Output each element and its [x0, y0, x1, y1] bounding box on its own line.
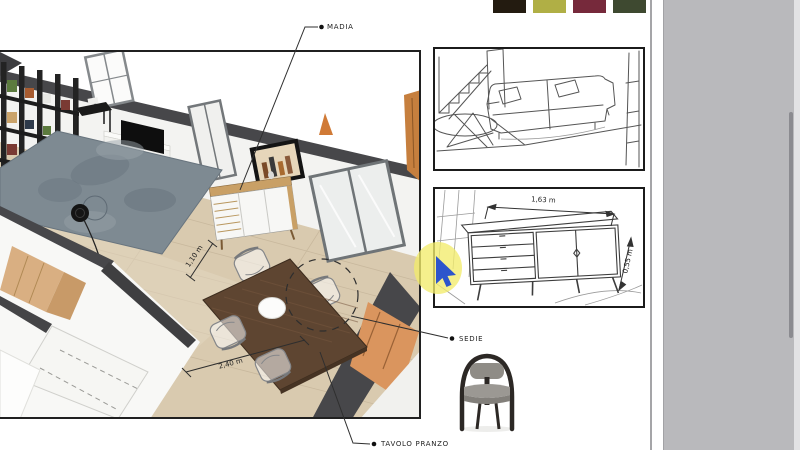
chair-back-legs [477, 403, 499, 429]
madia-label: MADIA [327, 23, 354, 31]
scrollbar-track[interactable] [794, 0, 800, 450]
palette-swatch[interactable] [573, 0, 606, 13]
dim-sideboard-depth: 0,55 m [621, 248, 634, 274]
color-palette [490, 0, 660, 13]
viewer-canvas-background [663, 0, 800, 450]
glass-doors [310, 161, 404, 261]
chair-seat [464, 384, 510, 398]
screenshot-stage: 1,10 m 2,40 m [0, 0, 800, 450]
scrollbar-thumb[interactable] [789, 112, 793, 338]
chair-photo [450, 345, 524, 433]
palette-swatch[interactable] [493, 0, 526, 13]
madia-leader-dot [319, 25, 324, 30]
cursor [408, 236, 472, 300]
sedie-leader-dot [450, 336, 455, 341]
palette-swatch[interactable] [613, 0, 646, 13]
palette-swatch[interactable] [533, 0, 566, 13]
sofa-sketch-panel [433, 47, 645, 171]
sedie-label: SEDIE [459, 335, 483, 343]
sofa-sketch [435, 49, 643, 169]
page-edge-line [650, 0, 652, 450]
room-3d-render: 1,10 m 2,40 m [0, 50, 421, 419]
dim-sideboard-width: 1,63 m [531, 195, 556, 204]
tavolo-pranzo-label: TAVOLO PRANZO [381, 440, 449, 448]
chair-back-cushion [470, 363, 504, 379]
sideboard-drawing [461, 211, 621, 301]
tavolo-leader-dot [372, 442, 377, 447]
